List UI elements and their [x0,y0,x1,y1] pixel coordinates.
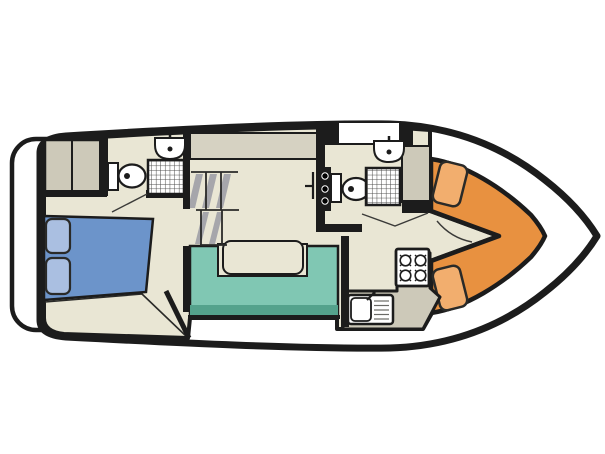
pillow [46,258,70,294]
wall [45,190,107,197]
sink-icon [348,291,393,324]
sofa-front-edge [190,305,338,316]
toilet-cistern [108,163,118,190]
toilet-flush-dot [348,186,354,192]
shower-icon [366,168,400,205]
wall [99,134,108,196]
toilet-bowl [119,165,146,188]
shower-icon [148,160,184,194]
toilet-cistern [331,174,341,202]
wardrobe-cabinet [45,140,105,192]
stove-icon [396,249,429,286]
boat-floorplan-canvas [0,0,605,454]
tall-cabinet-body [402,146,430,202]
sink-basin [351,298,371,321]
wardrobe-body [45,140,105,192]
hinge-dot [322,173,328,179]
basin-drain-dot [387,150,392,155]
boat-floorplan [0,0,605,454]
basin-drain-dot [168,147,173,152]
sofa-base-line [188,315,340,319]
saloon-table [223,241,303,274]
sink-tap-dot [372,291,375,294]
saloon-sofa [188,241,340,319]
wall [183,246,190,312]
toilet-icon [108,163,146,190]
wall [324,123,338,145]
tall-cabinet-base [402,200,430,213]
hinge-dot [322,186,328,192]
tall-cabinet [402,146,430,213]
toilet-flush-dot [124,173,130,179]
door-hinges-icon [319,167,331,211]
hinge-dot [322,198,328,204]
shower-tray [366,168,400,205]
shower-tray [148,160,184,194]
pillow [46,219,70,253]
sideboard-cabinet [190,133,318,159]
wall [316,224,362,232]
